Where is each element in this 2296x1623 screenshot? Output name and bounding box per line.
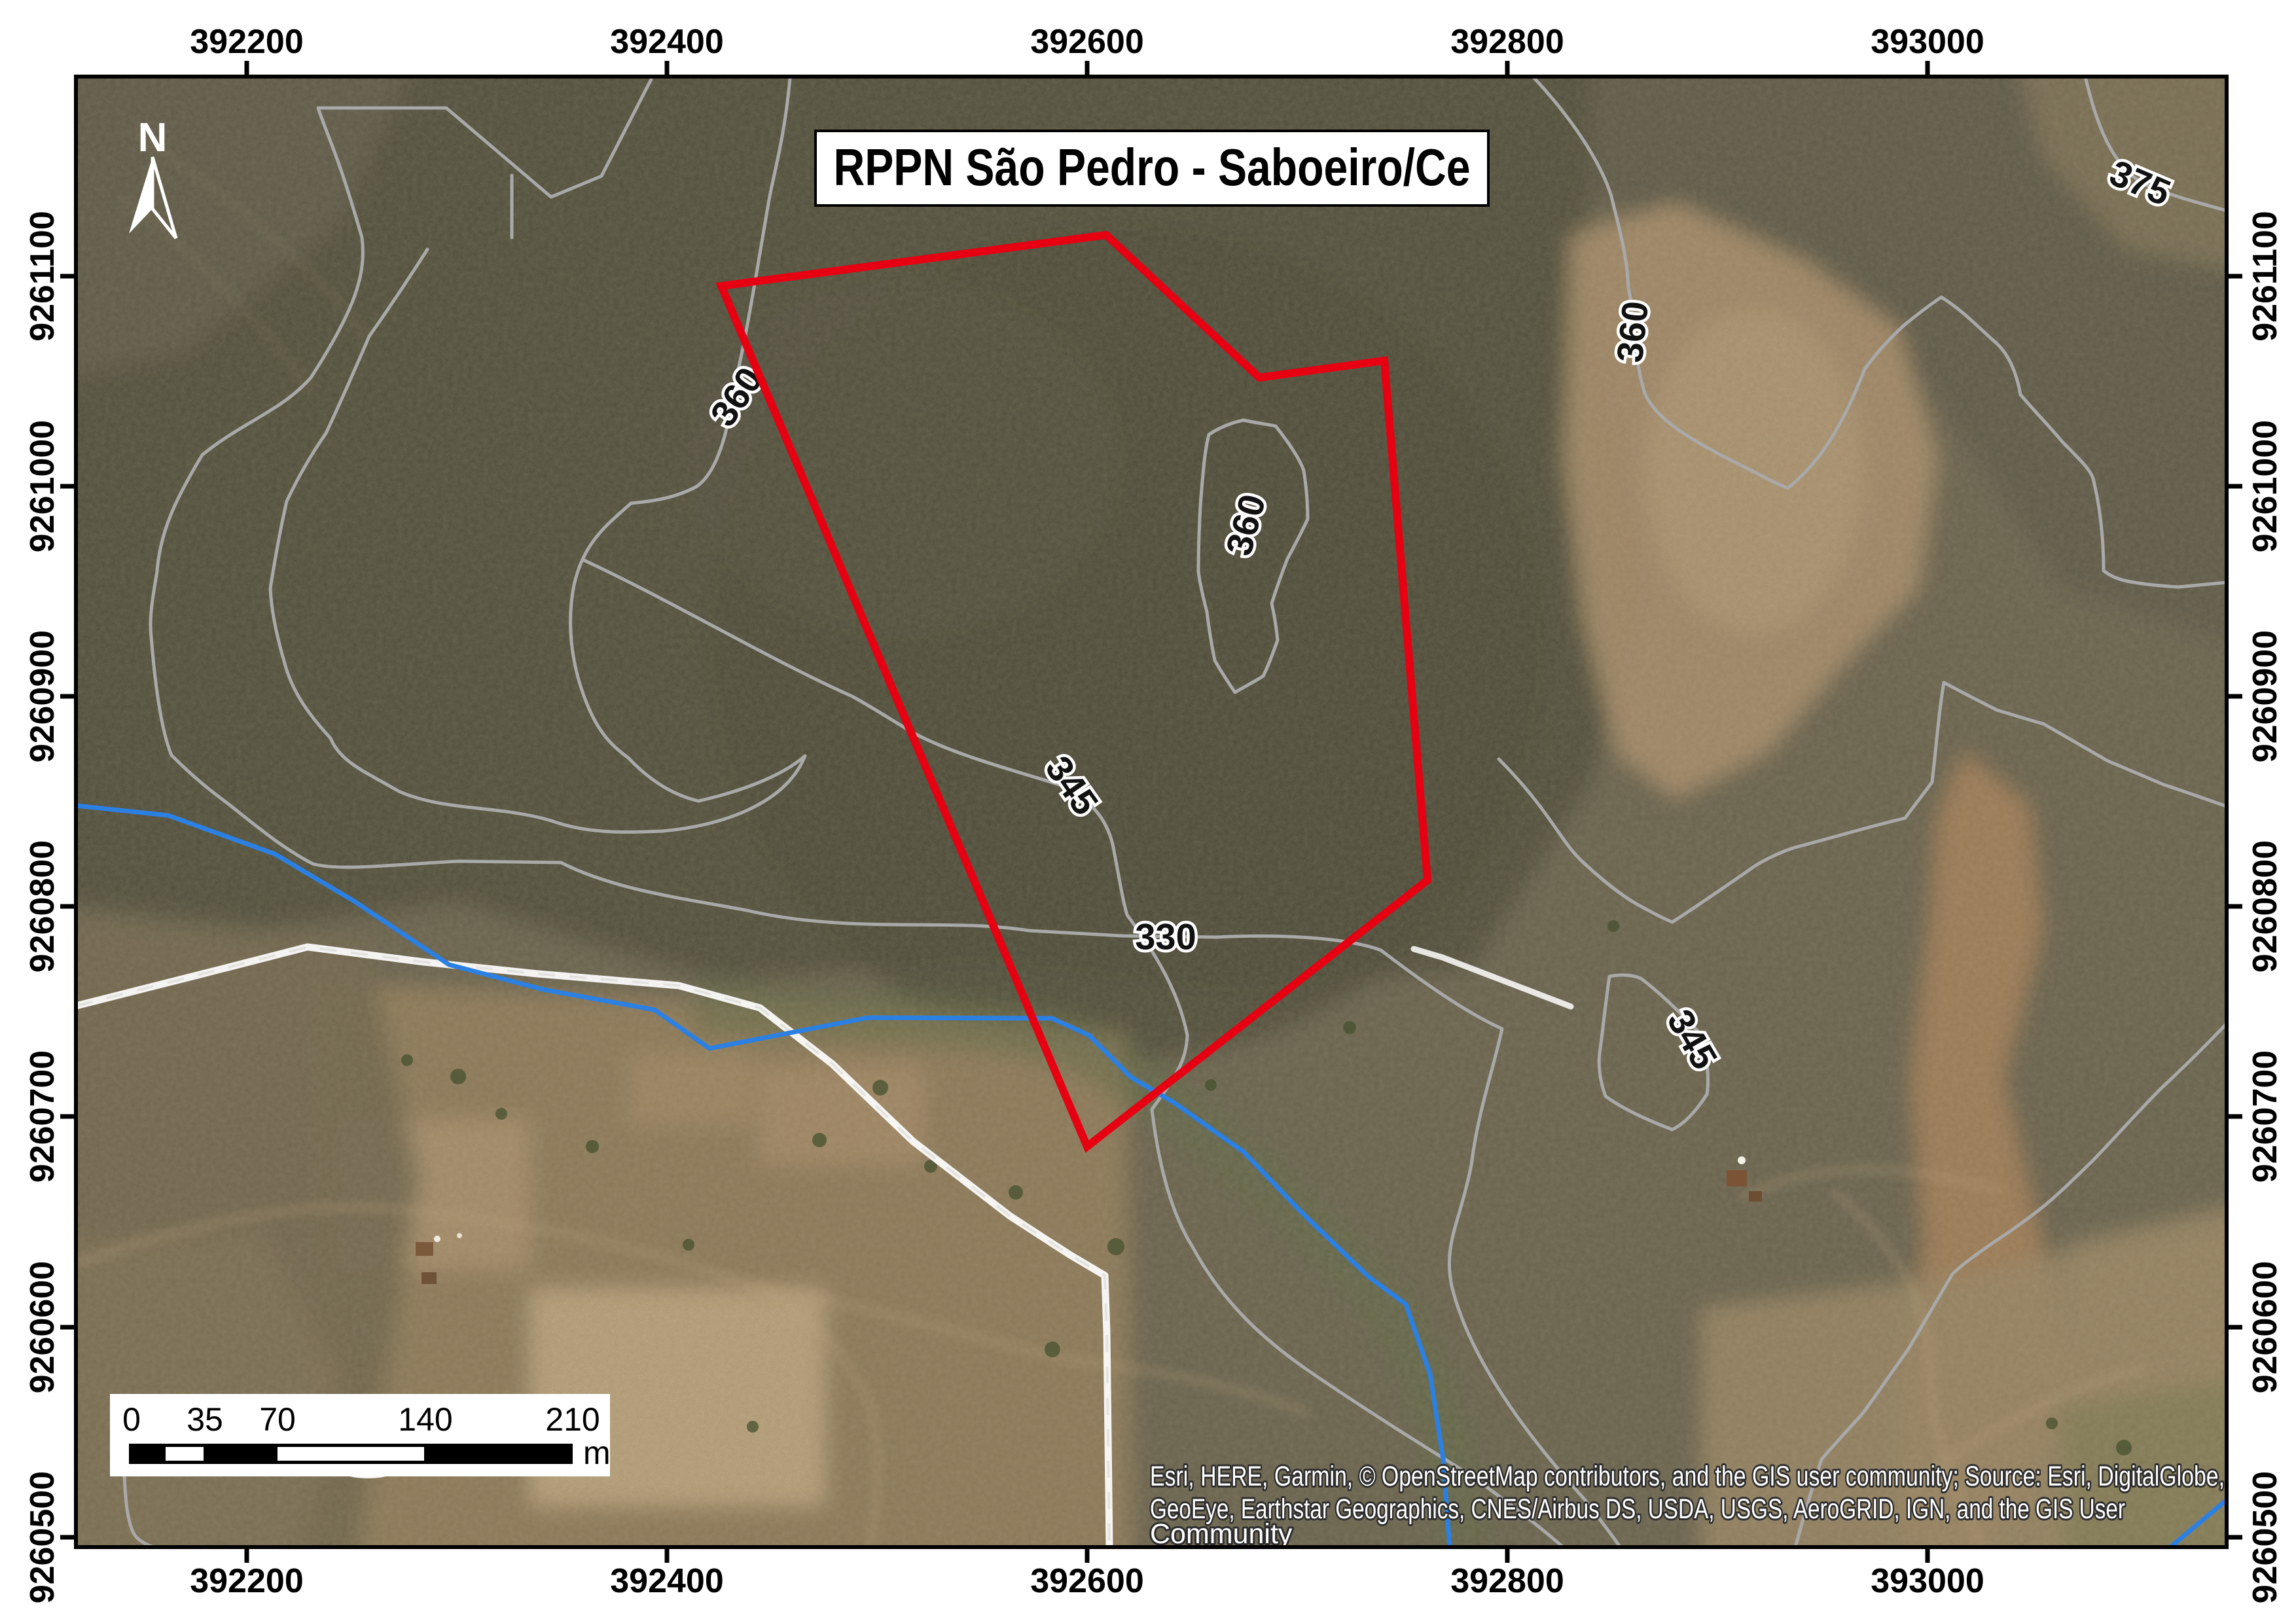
svg-text:9260500: 9260500 xyxy=(2246,1471,2284,1603)
svg-text:9260600: 9260600 xyxy=(2246,1261,2284,1393)
svg-text:35: 35 xyxy=(187,1401,223,1438)
svg-text:392200: 392200 xyxy=(190,23,304,61)
svg-text:392200: 392200 xyxy=(190,1562,304,1600)
svg-text:9260700: 9260700 xyxy=(24,1050,62,1183)
svg-text:393000: 393000 xyxy=(1871,1562,1984,1600)
svg-text:392400: 392400 xyxy=(610,23,724,61)
svg-text:9260500: 9260500 xyxy=(24,1471,62,1603)
svg-text:392400: 392400 xyxy=(610,1562,724,1600)
svg-text:9261000: 9261000 xyxy=(24,420,62,552)
svg-text:9260800: 9260800 xyxy=(24,840,62,972)
svg-text:392800: 392800 xyxy=(1450,1562,1564,1600)
svg-text:9260800: 9260800 xyxy=(2246,840,2284,972)
svg-text:360: 360 xyxy=(1609,299,1656,365)
svg-text:0: 0 xyxy=(122,1401,141,1438)
svg-text:Community: Community xyxy=(1150,1518,1293,1550)
svg-text:9260600: 9260600 xyxy=(24,1261,62,1393)
svg-text:392600: 392600 xyxy=(1030,1562,1144,1600)
svg-text:9261100: 9261100 xyxy=(2246,211,2284,342)
svg-text:70: 70 xyxy=(259,1401,296,1438)
svg-text:393000: 393000 xyxy=(1871,23,1984,61)
svg-text:140: 140 xyxy=(398,1401,452,1438)
svg-text:Esri, HERE, Garmin, © OpenStre: Esri, HERE, Garmin, © OpenStreetMap cont… xyxy=(1150,1461,2225,1492)
svg-text:RPPN São Pedro - Saboeiro/Ce: RPPN São Pedro - Saboeiro/Ce xyxy=(834,138,1471,196)
svg-text:9260700: 9260700 xyxy=(2246,1050,2284,1183)
svg-text:9261100: 9261100 xyxy=(24,211,62,342)
svg-text:330: 330 xyxy=(1135,916,1196,957)
svg-text:N: N xyxy=(138,115,168,160)
svg-text:9260900: 9260900 xyxy=(2246,630,2284,762)
svg-text:m: m xyxy=(583,1435,611,1471)
svg-text:210: 210 xyxy=(545,1401,600,1438)
svg-text:9261000: 9261000 xyxy=(2246,420,2284,552)
svg-text:GeoEye, Earthstar Geographics,: GeoEye, Earthstar Geographics, CNES/Airb… xyxy=(1150,1493,2125,1525)
svg-text:392800: 392800 xyxy=(1450,23,1564,61)
svg-text:9260900: 9260900 xyxy=(24,630,62,762)
svg-text:392600: 392600 xyxy=(1030,23,1144,61)
